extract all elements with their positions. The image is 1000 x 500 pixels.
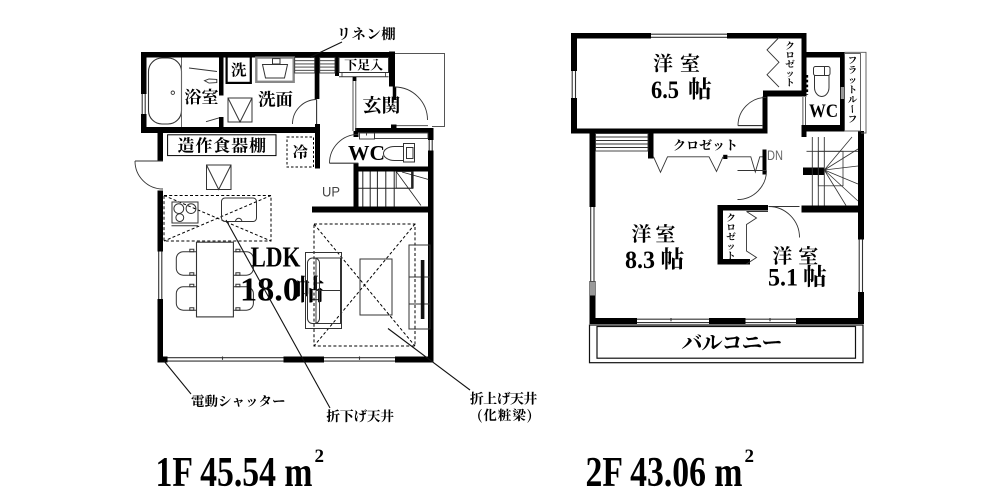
svg-text:1F 45.54 m: 1F 45.54 m [156, 450, 313, 496]
svg-text:WC: WC [348, 141, 385, 165]
svg-text:8.3: 8.3 [625, 247, 655, 274]
svg-text:2: 2 [745, 446, 755, 467]
svg-text:2F 43.06 m: 2F 43.06 m [586, 450, 743, 496]
svg-text:LDK: LDK [251, 243, 301, 274]
svg-text:5.1: 5.1 [768, 265, 798, 292]
svg-text:6.5: 6.5 [651, 77, 679, 104]
svg-text:2: 2 [315, 446, 325, 467]
svg-text:18.0: 18.0 [240, 272, 300, 309]
svg-text:WC: WC [809, 101, 838, 122]
svg-text:DN: DN [767, 148, 783, 163]
svg-text:UP: UP [322, 185, 340, 200]
